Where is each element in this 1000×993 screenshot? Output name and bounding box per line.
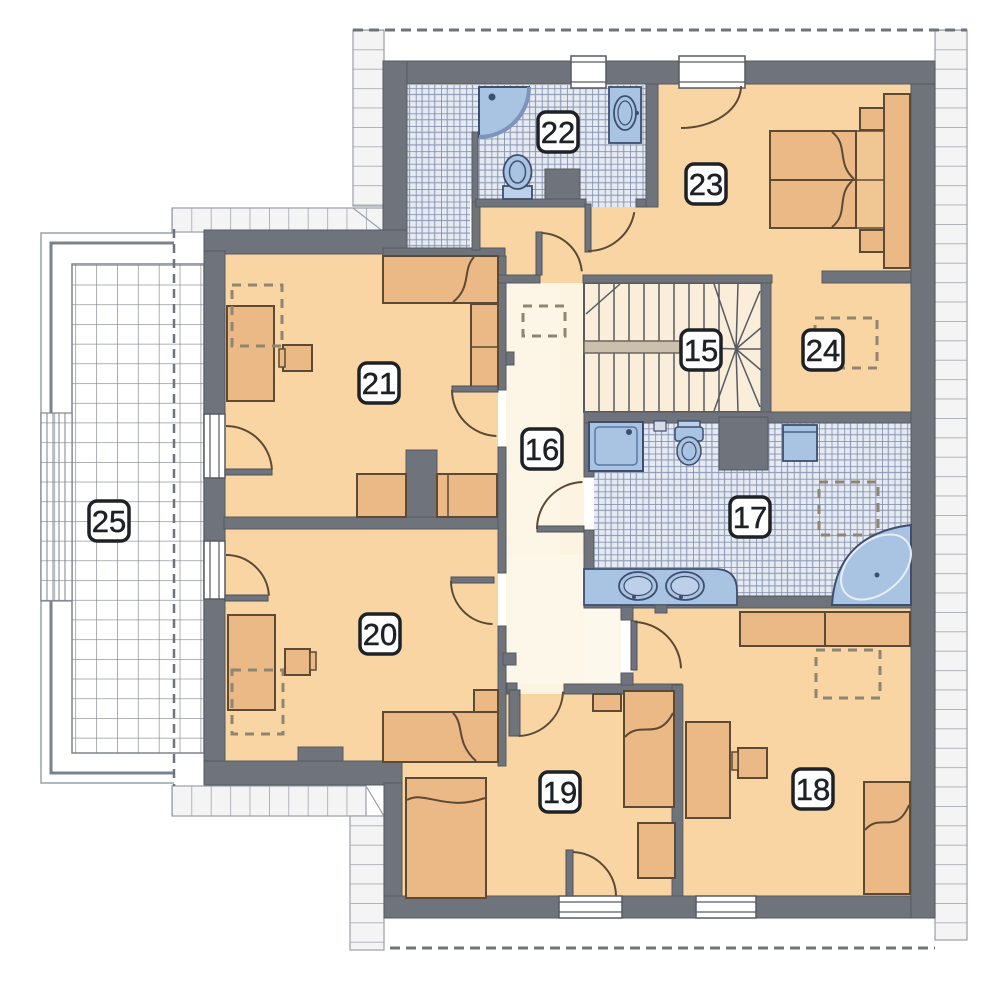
- svg-text:18: 18: [796, 772, 830, 807]
- svg-text:15: 15: [684, 333, 718, 368]
- svg-text:21: 21: [362, 366, 396, 401]
- svg-text:20: 20: [363, 617, 397, 652]
- svg-text:16: 16: [525, 432, 559, 467]
- svg-text:17: 17: [733, 500, 767, 535]
- svg-text:22: 22: [541, 115, 575, 150]
- svg-text:24: 24: [806, 333, 840, 368]
- svg-text:23: 23: [689, 167, 723, 202]
- svg-text:25: 25: [92, 504, 126, 539]
- svg-text:19: 19: [543, 775, 577, 810]
